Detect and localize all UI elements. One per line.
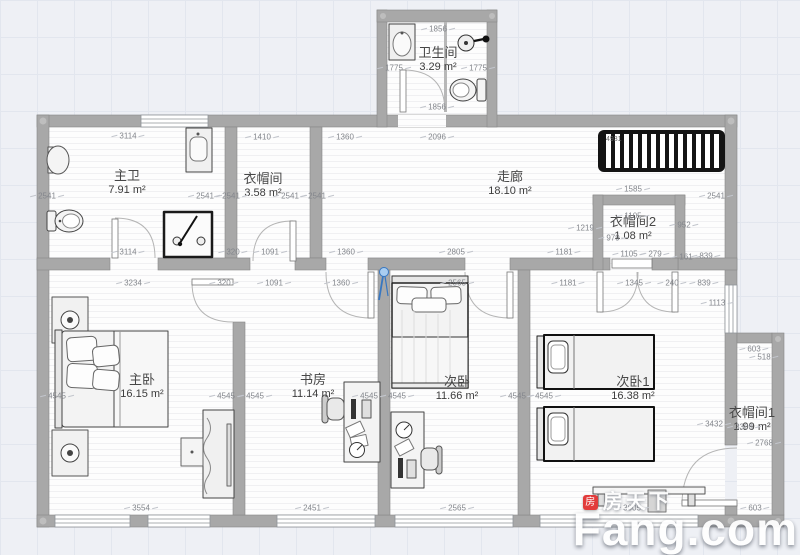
sink-icon[interactable]: [47, 146, 69, 174]
toilet-icon[interactable]: [47, 210, 83, 232]
double-bed-icon[interactable]: [55, 330, 168, 428]
wall[interactable]: [377, 10, 387, 127]
wall[interactable]: [593, 195, 603, 270]
window[interactable]: [141, 115, 208, 127]
window[interactable]: [540, 515, 698, 527]
window[interactable]: [55, 515, 130, 527]
wall[interactable]: [725, 115, 737, 445]
door-leaf[interactable]: [368, 272, 374, 318]
window[interactable]: [395, 515, 513, 527]
wardrobe-icon[interactable]: [203, 410, 234, 498]
wall[interactable]: [377, 10, 497, 22]
wall[interactable]: [225, 127, 237, 258]
office-chair-icon[interactable]: [421, 446, 442, 474]
wall[interactable]: [37, 258, 110, 270]
door-leaf[interactable]: [400, 70, 406, 112]
wall[interactable]: [295, 258, 326, 270]
door-leaf[interactable]: [672, 272, 678, 312]
toilet-icon[interactable]: [450, 79, 486, 101]
office-chair-icon[interactable]: [322, 395, 344, 423]
floorplan-canvas[interactable]: 4931: [0, 0, 800, 554]
door-leaf[interactable]: [290, 221, 296, 261]
door-leaf[interactable]: [597, 272, 603, 312]
door-leaf[interactable]: [192, 279, 233, 285]
wall[interactable]: [737, 333, 772, 343]
wall[interactable]: [593, 195, 685, 205]
door-leaf[interactable]: [612, 259, 652, 268]
window[interactable]: [725, 285, 737, 333]
door-leaf[interactable]: [112, 219, 118, 258]
wall[interactable]: [487, 10, 497, 127]
wall[interactable]: [725, 505, 737, 515]
single-bed-icon[interactable]: [392, 276, 468, 388]
wall[interactable]: [37, 115, 49, 527]
desk-icon[interactable]: [344, 382, 380, 462]
wall[interactable]: [233, 322, 245, 515]
shower-icon[interactable]: [164, 212, 212, 257]
wall[interactable]: [772, 333, 784, 515]
vanity-icon[interactable]: [186, 128, 212, 172]
door-leaf[interactable]: [507, 272, 513, 318]
window[interactable]: [277, 515, 375, 527]
floor-closet2[interactable]: [603, 205, 675, 258]
wall[interactable]: [518, 270, 530, 515]
floor-closet1[interactable]: [737, 343, 772, 515]
wall-glass-partition[interactable]: [444, 22, 447, 112]
stairs-label: 4931: [606, 136, 622, 143]
nightstand-icon[interactable]: [52, 430, 88, 476]
wall[interactable]: [310, 127, 322, 258]
wall[interactable]: [652, 258, 678, 270]
wall[interactable]: [675, 195, 685, 258]
side-table-icon[interactable]: [181, 438, 203, 466]
wall[interactable]: [678, 258, 737, 270]
wall[interactable]: [158, 258, 250, 270]
vanity-icon[interactable]: [389, 24, 415, 60]
window[interactable]: [148, 515, 210, 527]
wall[interactable]: [510, 258, 595, 270]
single-bed-icon[interactable]: [537, 335, 654, 389]
single-bed-icon[interactable]: [537, 407, 654, 461]
stairs-icon[interactable]: 4931: [598, 130, 725, 172]
door-opening: [398, 115, 446, 127]
desk-icon[interactable]: [391, 412, 424, 488]
